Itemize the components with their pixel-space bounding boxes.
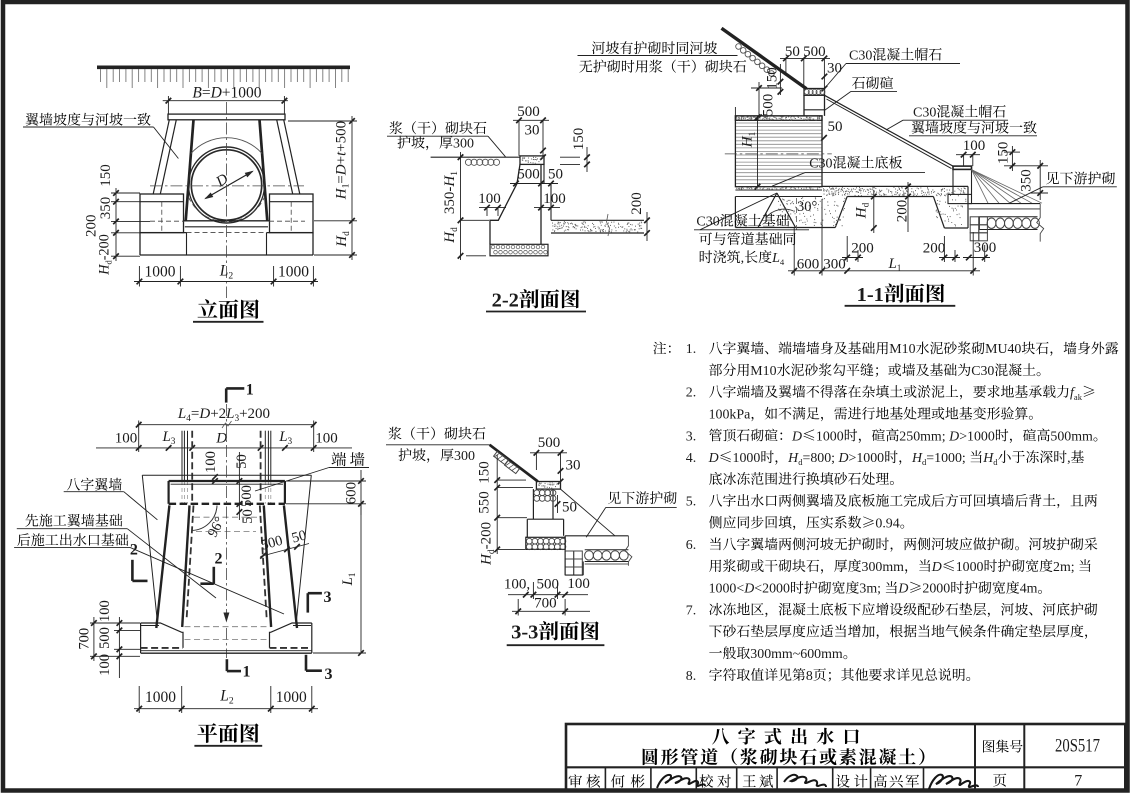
svg-text:100kPa: 100kPa (709, 408, 751, 423)
svg-text:D: D (708, 451, 719, 466)
svg-text:>1000: >1000 (849, 451, 885, 466)
svg-text:1000: 1000 (145, 264, 176, 281)
svg-text:3.: 3. (686, 429, 696, 444)
svg-text:7: 7 (1074, 773, 1082, 790)
svg-text:D: D (215, 431, 227, 447)
svg-text:1: 1 (450, 171, 460, 176)
svg-text:L: L (278, 429, 287, 445)
svg-text:1000: 1000 (956, 560, 984, 575)
svg-text:L: L (771, 251, 780, 266)
svg-text:150: 150 (764, 67, 780, 90)
svg-text:200: 200 (83, 215, 99, 238)
svg-text:700: 700 (534, 596, 557, 612)
svg-text:-200: -200 (97, 234, 113, 260)
svg-text:7.: 7. (686, 603, 696, 618)
svg-text:30: 30 (827, 61, 842, 77)
svg-text:+1000: +1000 (222, 85, 262, 102)
svg-text:300: 300 (453, 137, 474, 152)
svg-text:30°: 30° (797, 199, 818, 215)
svg-text:250mm;: 250mm; (899, 429, 945, 444)
svg-text:3: 3 (324, 589, 332, 606)
svg-text:100,: 100, (504, 577, 530, 593)
svg-text:5.: 5. (686, 495, 696, 510)
svg-text:350: 350 (1019, 169, 1035, 192)
svg-text:4m: 4m (1020, 582, 1038, 597)
svg-text:300: 300 (823, 256, 846, 272)
svg-text:30: 30 (525, 123, 540, 139)
svg-text:D: D (931, 560, 942, 575)
svg-text:C30: C30 (849, 49, 872, 64)
svg-text:700: 700 (77, 628, 93, 650)
svg-text:L: L (177, 406, 186, 422)
svg-text:600: 600 (343, 482, 359, 505)
svg-text:D: D (743, 582, 754, 597)
svg-text:C30: C30 (809, 157, 832, 172)
svg-text:100: 100 (115, 431, 138, 447)
svg-text:150: 150 (98, 164, 114, 187)
svg-text:500: 500 (803, 44, 826, 60)
svg-text:500: 500 (538, 435, 561, 451)
svg-text:3: 3 (288, 437, 293, 447)
svg-text:96°: 96° (205, 514, 229, 540)
svg-text:500mm: 500mm (1050, 429, 1093, 444)
svg-text:D: D (210, 85, 222, 102)
svg-text:d: d (342, 231, 352, 236)
svg-text:=: = (202, 85, 211, 102)
svg-text:<2000: <2000 (754, 582, 790, 597)
svg-text:D: D (838, 451, 849, 466)
svg-text:1000: 1000 (816, 429, 844, 444)
svg-text:2m;: 2m; (1053, 560, 1075, 575)
svg-text:D: D (333, 164, 349, 176)
svg-text:L: L (219, 263, 229, 280)
svg-text:d: d (450, 227, 460, 232)
svg-text:200: 200 (923, 241, 946, 257)
svg-text:=: = (191, 406, 199, 422)
svg-text:=800;: =800; (803, 451, 836, 466)
svg-text:d: d (993, 457, 998, 467)
svg-text:350-: 350- (442, 187, 458, 215)
svg-text:50: 50 (240, 509, 256, 524)
svg-text:MU40: MU40 (985, 342, 1021, 357)
svg-text:L: L (888, 256, 897, 272)
svg-text:3m;: 3m; (859, 582, 881, 597)
svg-text:L: L (162, 429, 171, 445)
svg-text:500: 500 (239, 485, 255, 507)
svg-text:300mm: 300mm (862, 560, 905, 575)
svg-text:200: 200 (894, 200, 910, 223)
svg-text:1000<: 1000< (709, 582, 745, 597)
svg-text:300mm~600mm: 300mm~600mm (750, 647, 843, 662)
svg-text:D: D (897, 582, 908, 597)
svg-text:+: + (333, 156, 349, 164)
svg-text:1000: 1000 (145, 689, 176, 706)
svg-text:150: 150 (476, 461, 492, 484)
svg-text:L: L (219, 688, 229, 705)
svg-text:+2: +2 (210, 406, 226, 422)
svg-text:0.94: 0.94 (875, 516, 899, 531)
svg-text:500: 500 (761, 94, 777, 117)
svg-text:2: 2 (229, 696, 234, 707)
svg-text:H: H (97, 264, 113, 276)
svg-text:D: D (213, 171, 232, 191)
svg-text:20S517: 20S517 (1055, 736, 1100, 757)
svg-text:1: 1 (246, 382, 254, 399)
svg-text:=: = (333, 175, 349, 183)
svg-text:150: 150 (571, 128, 587, 151)
svg-text:C30: C30 (913, 106, 936, 121)
svg-text:+200: +200 (239, 406, 270, 422)
svg-text:3: 3 (171, 437, 176, 447)
svg-text:1: 1 (748, 131, 758, 136)
svg-text:100: 100 (543, 191, 566, 207)
svg-text:30: 30 (566, 458, 581, 474)
svg-text:2-2: 2-2 (492, 290, 519, 312)
svg-text:M10: M10 (750, 364, 776, 379)
svg-text:D: D (198, 406, 210, 422)
svg-text:150: 150 (995, 142, 1011, 165)
svg-text:d: d (862, 202, 872, 207)
svg-text:=1000;: =1000; (926, 451, 965, 466)
svg-text:200: 200 (851, 241, 874, 257)
svg-text:ak: ak (1074, 392, 1083, 402)
svg-text:2: 2 (228, 271, 233, 282)
svg-text:600: 600 (797, 256, 820, 272)
svg-text:100: 100 (567, 576, 590, 592)
svg-text:1-1: 1-1 (857, 284, 884, 306)
svg-text:2000: 2000 (922, 582, 950, 597)
svg-text:4.: 4. (686, 451, 696, 466)
svg-text:B: B (192, 85, 202, 102)
svg-text:>1000: >1000 (959, 429, 995, 444)
svg-text:200: 200 (629, 192, 645, 215)
svg-text:1000: 1000 (276, 689, 307, 706)
svg-text:50: 50 (548, 167, 563, 183)
svg-text:6.: 6. (686, 538, 696, 553)
svg-text:100: 100 (97, 600, 113, 622)
svg-text:C30: C30 (971, 364, 994, 379)
svg-text:500: 500 (537, 577, 560, 593)
svg-text:3: 3 (325, 666, 333, 683)
svg-text:100: 100 (963, 138, 986, 154)
svg-text:500: 500 (97, 627, 113, 649)
svg-text:L: L (340, 577, 356, 586)
svg-text:50: 50 (828, 119, 843, 135)
svg-text:550: 550 (476, 491, 492, 513)
svg-text:100: 100 (315, 431, 338, 447)
svg-text:1000: 1000 (278, 264, 309, 281)
svg-text:,: , (1067, 451, 1070, 466)
svg-text:1.: 1. (686, 342, 696, 357)
svg-text:350: 350 (98, 197, 114, 220)
svg-text:500: 500 (517, 167, 540, 183)
svg-text:8.: 8. (686, 669, 696, 684)
svg-text:1000: 1000 (733, 451, 761, 466)
svg-text:+500: +500 (333, 121, 349, 152)
svg-text:M10: M10 (889, 342, 915, 357)
svg-text:3-3: 3-3 (511, 622, 538, 644)
svg-text:100: 100 (203, 451, 219, 473)
svg-text:-200: -200 (479, 522, 495, 550)
svg-text:D: D (791, 429, 802, 444)
svg-text:1: 1 (348, 572, 358, 577)
svg-text:300: 300 (454, 449, 475, 464)
svg-text:1: 1 (897, 264, 902, 274)
svg-text:50: 50 (234, 454, 250, 469)
svg-text:4: 4 (780, 257, 785, 267)
svg-text:500: 500 (259, 533, 284, 554)
svg-text:D: D (948, 429, 959, 444)
svg-text:2.: 2. (686, 386, 696, 401)
svg-text:8: 8 (806, 669, 813, 684)
svg-text:,: , (741, 251, 745, 266)
svg-text:100: 100 (97, 654, 113, 676)
svg-text:1: 1 (243, 664, 251, 681)
svg-text:2: 2 (215, 551, 223, 568)
